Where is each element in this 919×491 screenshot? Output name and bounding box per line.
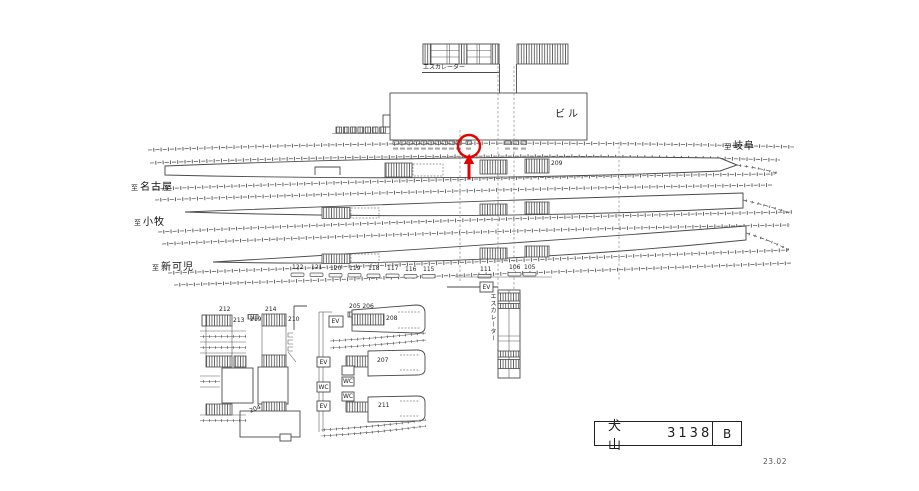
elevator-label-1: EV [332, 319, 340, 325]
station-building [332, 93, 587, 140]
platform-3 [213, 226, 746, 263]
position-209: 209 [551, 161, 562, 167]
board-number: 3138 [667, 426, 712, 441]
building-label: ビル [555, 110, 581, 120]
upper-escalator-label: エスカレーター [423, 65, 465, 71]
position-213: 213 [233, 318, 244, 324]
toilet-label-1: WC [319, 385, 329, 391]
position-117: 117 [387, 266, 398, 272]
board-suffix: B [712, 422, 741, 445]
diagram-linework [0, 0, 919, 491]
center-escalator-label: エスカレーター [489, 293, 495, 343]
direction-gifu: 至岐阜 [724, 136, 755, 152]
station-name: 犬 山 [608, 415, 651, 453]
position-119: 119 [349, 266, 360, 272]
elevator-label-3: EV [320, 404, 328, 410]
elevator-label-2: EV [320, 360, 328, 366]
position-121: 121 [311, 265, 322, 271]
platforms [165, 157, 746, 263]
position-211: 211 [378, 403, 389, 409]
position-120: 120 [330, 266, 341, 272]
position-111: 111 [480, 267, 491, 273]
position-116: 116 [405, 267, 416, 273]
position-115: 115 [423, 267, 434, 273]
position-208: 208 [386, 316, 397, 322]
position-118: 118 [368, 266, 379, 272]
station-layout-diagram: エスカレーター ビル 至岐阜 至名古屋 至小牧 至新可児 209 122 121… [0, 0, 919, 491]
position-122: 122 [292, 265, 303, 271]
direction-nagoya: 至名古屋 [131, 177, 173, 193]
elevator-label-center: EV [483, 285, 491, 291]
position-210: 210 [288, 317, 299, 323]
position-214: 214 [265, 307, 276, 313]
position-219: 219 [250, 317, 261, 323]
toilet-label-3: WC [343, 394, 353, 400]
direction-shinkani: 至新可児 [152, 257, 194, 273]
center-overpass [447, 277, 552, 378]
position-207: 207 [377, 358, 388, 364]
revision-date: 23.02 [763, 458, 787, 466]
position-106: 106 [509, 265, 520, 271]
title-box: 犬 山 3138 B [594, 421, 742, 446]
position-105: 105 [524, 265, 535, 271]
direction-komaki: 至小牧 [134, 212, 165, 228]
position-212: 212 [219, 307, 230, 313]
underpass-west-detail [200, 306, 307, 441]
toilet-label-2: WC [343, 379, 353, 385]
position-205-206: 205 206 [349, 304, 374, 310]
